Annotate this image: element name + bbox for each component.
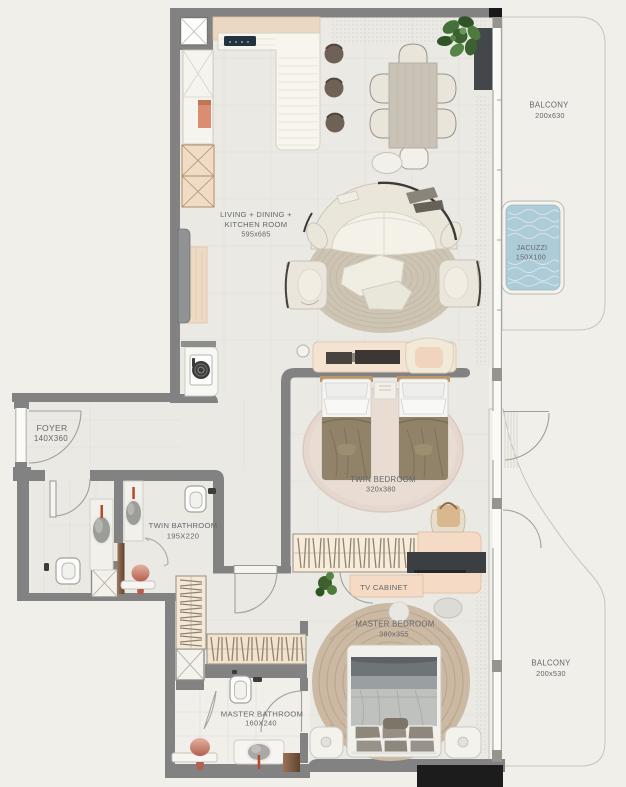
svg-text:TWIN BEDROOM: TWIN BEDROOM (350, 475, 416, 484)
svg-text:200x530: 200x530 (536, 669, 566, 678)
svg-text:TWIN BATHROOM: TWIN BATHROOM (149, 521, 218, 530)
svg-text:MASTER BEDROOM: MASTER BEDROOM (355, 620, 434, 629)
svg-text:150X100: 150X100 (516, 255, 546, 262)
svg-text:BALCONY: BALCONY (531, 659, 571, 668)
svg-text:KITCHEN ROOM: KITCHEN ROOM (225, 220, 288, 229)
svg-text:FOYER: FOYER (36, 423, 67, 433)
svg-text:JACUZZI: JACUZZI (517, 245, 548, 252)
svg-text:140X360: 140X360 (34, 434, 68, 443)
svg-text:380x355: 380x355 (379, 630, 409, 639)
svg-text:200x630: 200x630 (535, 111, 565, 120)
svg-text:160X240: 160X240 (245, 719, 277, 728)
svg-text:TV CABINET: TV CABINET (360, 583, 408, 592)
svg-text:MASTER BATHROOM: MASTER BATHROOM (221, 710, 304, 719)
svg-text:195X220: 195X220 (167, 532, 200, 541)
svg-text:320x380: 320x380 (366, 485, 396, 494)
svg-text:595x685: 595x685 (241, 231, 270, 239)
svg-text:LIVING + DINING +: LIVING + DINING + (220, 210, 292, 219)
svg-text:BALCONY: BALCONY (529, 101, 569, 110)
